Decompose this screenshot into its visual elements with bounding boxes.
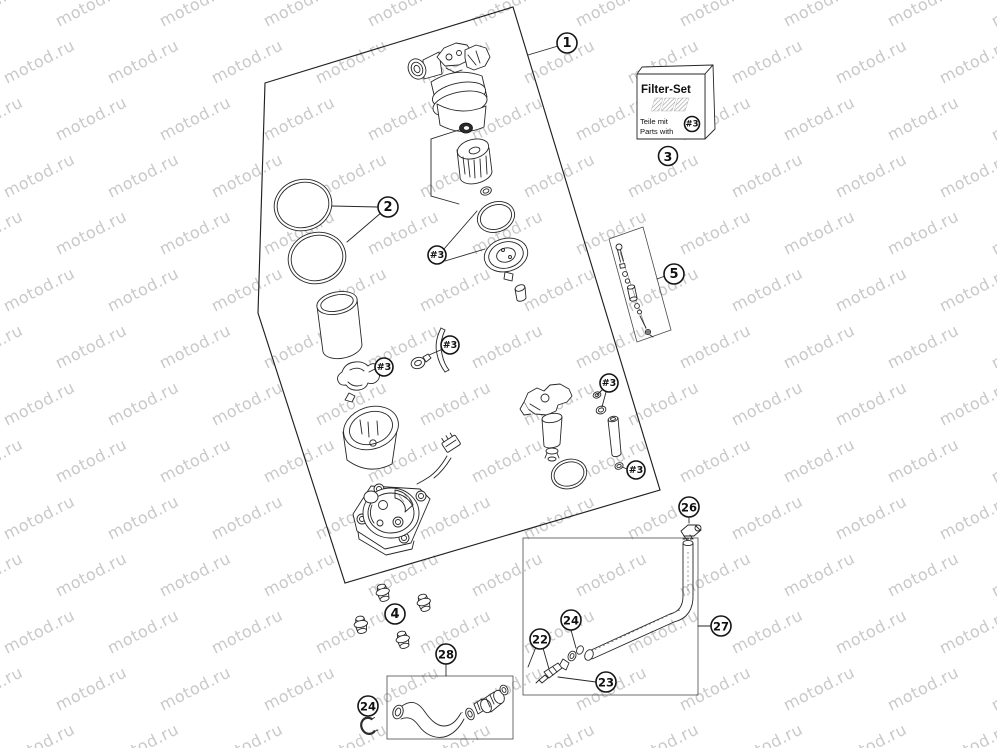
watermark-text: motod.ru (156, 434, 234, 486)
watermark-text: motod.ru (520, 491, 598, 543)
watermark-text: motod.ru (832, 149, 910, 201)
watermark-text: motod.ru (832, 491, 910, 543)
filter-set-line1: Teile mit (640, 117, 669, 126)
watermark-text: motod.ru (884, 206, 962, 258)
watermark-text: motod.ru (884, 662, 962, 714)
svg-text:5: 5 (669, 267, 678, 282)
watermark-text: motod.ru (780, 548, 858, 600)
watermark-text: motod.ru (988, 92, 997, 144)
watermark-text: motod.ru (884, 434, 962, 486)
watermark-text: motod.ru (156, 0, 234, 31)
mounting-flange (353, 484, 430, 555)
watermark-text: motod.ru (884, 0, 962, 31)
watermark-text: motod.ru (0, 206, 26, 258)
watermark-text: motod.ru (676, 206, 754, 258)
watermark-text: motod.ru (208, 719, 286, 748)
callout-5: 5 (664, 264, 684, 284)
watermark-text: motod.ru (520, 263, 598, 315)
watermark-text: motod.ru (260, 548, 338, 600)
watermark-text: motod.ru (676, 548, 754, 600)
svg-text:#3: #3 (602, 378, 617, 389)
watermark-text: motod.ru (936, 491, 997, 543)
svg-text:23: 23 (598, 676, 614, 690)
watermark-text: motod.ru (0, 377, 78, 429)
watermark-text: motod.ru (468, 0, 546, 31)
watermark-text: motod.ru (676, 434, 754, 486)
watermark-text: motod.ru (104, 263, 182, 315)
watermark-text: motod.ru (936, 263, 997, 315)
watermark-text: motod.ru (468, 548, 546, 600)
watermark-text: motod.ru (364, 0, 442, 31)
watermark-text: motod.ru (0, 35, 78, 87)
watermark-text: motod.ru (312, 35, 390, 87)
watermark-text: motod.ru (728, 377, 806, 429)
fuel-hose-28 (391, 702, 468, 737)
watermark-text: motod.ru (728, 149, 806, 201)
watermark-text: motod.ru (156, 548, 234, 600)
watermark-text: motod.ru (936, 605, 997, 657)
watermark-text: motod.ru (936, 35, 997, 87)
svg-text:27: 27 (713, 620, 729, 634)
watermark-text: motod.ru (572, 206, 650, 258)
watermark-text: motod.ru (780, 320, 858, 372)
watermark-text: motod.ru (104, 491, 182, 543)
oring-small (479, 185, 492, 196)
callout-24: 24 (358, 696, 378, 716)
watermark-text: motod.ru (624, 605, 702, 657)
watermark-text: motod.ru (312, 605, 390, 657)
watermark-text: motod.ru (884, 548, 962, 600)
callout-3: 3 (659, 147, 678, 166)
watermark-text: motod.ru (0, 0, 26, 31)
oring-b (595, 405, 607, 416)
diagram-page: motod.rumotod.rumotod.rumotod.rumotod.ru… (0, 0, 997, 748)
watermark-text: motod.ru (676, 662, 754, 714)
watermark-text: motod.ru (728, 605, 806, 657)
watermark-text: motod.ru (52, 206, 130, 258)
filter-set-line2: Parts with (640, 127, 673, 136)
watermark-text: motod.ru (0, 149, 78, 201)
watermark-text: motod.ru (156, 662, 234, 714)
watermark-text: motod.ru (208, 377, 286, 429)
watermark-text: motod.ru (156, 206, 234, 258)
watermark-text: motod.ru (0, 491, 78, 543)
watermark-text: motod.ru (832, 263, 910, 315)
retainer-grommet (410, 354, 431, 371)
watermark-text: motod.ru (780, 206, 858, 258)
watermark-text: motod.ru (52, 548, 130, 600)
callout-4: 4 (385, 604, 405, 624)
svg-text:22: 22 (532, 633, 548, 647)
watermark-text: motod.ru (988, 320, 997, 372)
watermark-text: motod.ru (936, 377, 997, 429)
watermark-text: motod.ru (104, 35, 182, 87)
svg-text:2: 2 (383, 200, 392, 215)
svg-text:#3: #3 (430, 250, 445, 261)
watermark-text: motod.ru (624, 377, 702, 429)
watermark-text: motod.ru (208, 149, 286, 201)
callout-26: 26 (679, 497, 699, 517)
watermark-text: motod.ru (520, 719, 598, 748)
watermark-text: motod.ru (104, 719, 182, 748)
watermark-text: motod.ru (988, 206, 997, 258)
callout-27: 27 (711, 616, 731, 636)
filter-set-box: Filter-Set Teile mit Parts with (637, 65, 715, 139)
watermark-text: motod.ru (676, 0, 754, 31)
watermark-text: motod.ru (988, 662, 997, 714)
watermark-text: motod.ru (832, 719, 910, 748)
watermark-text: motod.ru (0, 605, 78, 657)
watermark-text: motod.ru (104, 605, 182, 657)
watermark-text: motod.ru (52, 320, 130, 372)
watermark-text: motod.ru (208, 605, 286, 657)
watermark-text: motod.ru (260, 434, 338, 486)
watermark-text: motod.ru (52, 662, 130, 714)
watermark-text: motod.ru (416, 377, 494, 429)
watermark-text: motod.ru (52, 92, 130, 144)
watermark-text: motod.ru (260, 0, 338, 31)
svg-text:24: 24 (360, 700, 376, 714)
callout-hash3: #3 (428, 246, 446, 264)
watermark-text: motod.ru (988, 0, 997, 31)
watermark-text: motod.ru (780, 0, 858, 31)
callout-2: 2 (378, 197, 398, 217)
watermark-text: motod.ru (832, 605, 910, 657)
watermark-text: motod.ru (728, 263, 806, 315)
callout-28: 28 (436, 644, 456, 664)
watermark-text: motod.ru (676, 320, 754, 372)
callout-24: 24 (561, 610, 581, 630)
watermark-text: motod.ru (728, 35, 806, 87)
watermark-text: motod.ru (936, 719, 997, 748)
watermark-text: motod.ru (468, 434, 546, 486)
watermark-text: motod.ru (416, 263, 494, 315)
fuel-filter (455, 136, 492, 184)
watermark-text: motod.ru (728, 491, 806, 543)
watermark-text: motod.ru (0, 320, 26, 372)
watermark-text: motod.ru (52, 0, 130, 31)
watermark-text: motod.ru (780, 92, 858, 144)
watermark-text: motod.ru (832, 35, 910, 87)
callout-hash3: #3 (600, 374, 618, 392)
watermark-text: motod.ru (0, 662, 26, 714)
svg-text:26: 26 (681, 501, 697, 515)
watermark-text: motod.ru (780, 662, 858, 714)
filter-set-title: Filter-Set (641, 84, 691, 96)
watermark-text: motod.ru (208, 263, 286, 315)
watermark-text: motod.ru (572, 548, 650, 600)
watermark-text: motod.ru (780, 434, 858, 486)
watermark-text: motod.ru (208, 491, 286, 543)
watermark-text: motod.ru (936, 149, 997, 201)
svg-text:28: 28 (438, 648, 454, 662)
svg-text:4: 4 (390, 607, 399, 622)
watermark-text: motod.ru (468, 320, 546, 372)
watermark-text: motod.ru (0, 92, 26, 144)
watermark-text: motod.ru (0, 548, 26, 600)
exploded-parts-diagram: motod.rumotod.rumotod.rumotod.rumotod.ru… (0, 0, 997, 748)
watermark-text: motod.ru (988, 434, 997, 486)
watermark-text: motod.ru (364, 92, 442, 144)
svg-text:#3: #3 (629, 465, 644, 476)
callout-22: 22 (530, 629, 550, 649)
watermark-text: motod.ru (624, 719, 702, 748)
svg-text:#3: #3 (685, 120, 698, 130)
watermark-text: motod.ru (312, 719, 390, 748)
watermark-text: motod.ru (260, 92, 338, 144)
svg-text:#3: #3 (377, 362, 392, 373)
svg-text:3: 3 (664, 149, 673, 164)
svg-text:#3: #3 (443, 340, 458, 351)
watermark-text: motod.ru (104, 149, 182, 201)
watermark-text: motod.ru (572, 0, 650, 31)
watermark-text: motod.ru (884, 92, 962, 144)
watermark-text: motod.ru (156, 320, 234, 372)
watermark-text: motod.ru (52, 434, 130, 486)
pump-sleeve (315, 288, 362, 359)
watermark-text: motod.ru (988, 548, 997, 600)
watermark-layer: motod.rumotod.rumotod.rumotod.rumotod.ru… (0, 0, 997, 748)
svg-text:1: 1 (562, 36, 571, 51)
oring-dark (460, 123, 473, 133)
watermark-text: motod.ru (0, 263, 78, 315)
watermark-text: motod.ru (104, 377, 182, 429)
watermark-text: motod.ru (832, 377, 910, 429)
callout-hash3: #3 (441, 336, 459, 354)
callout-23: 23 (596, 672, 616, 692)
svg-text:24: 24 (563, 614, 579, 628)
watermark-text: motod.ru (156, 92, 234, 144)
watermark-text: motod.ru (0, 434, 26, 486)
callout-1: 1 (557, 33, 577, 53)
callout-hash3: #3 (627, 461, 645, 479)
watermark-text: motod.ru (728, 719, 806, 748)
ktm-logo (651, 98, 689, 111)
callout-hash3: #3 (375, 358, 393, 376)
watermark-text: motod.ru (0, 719, 78, 748)
watermark-text: motod.ru (884, 320, 962, 372)
watermark-text: motod.ru (260, 662, 338, 714)
callout-hash3: #3 (685, 117, 700, 132)
